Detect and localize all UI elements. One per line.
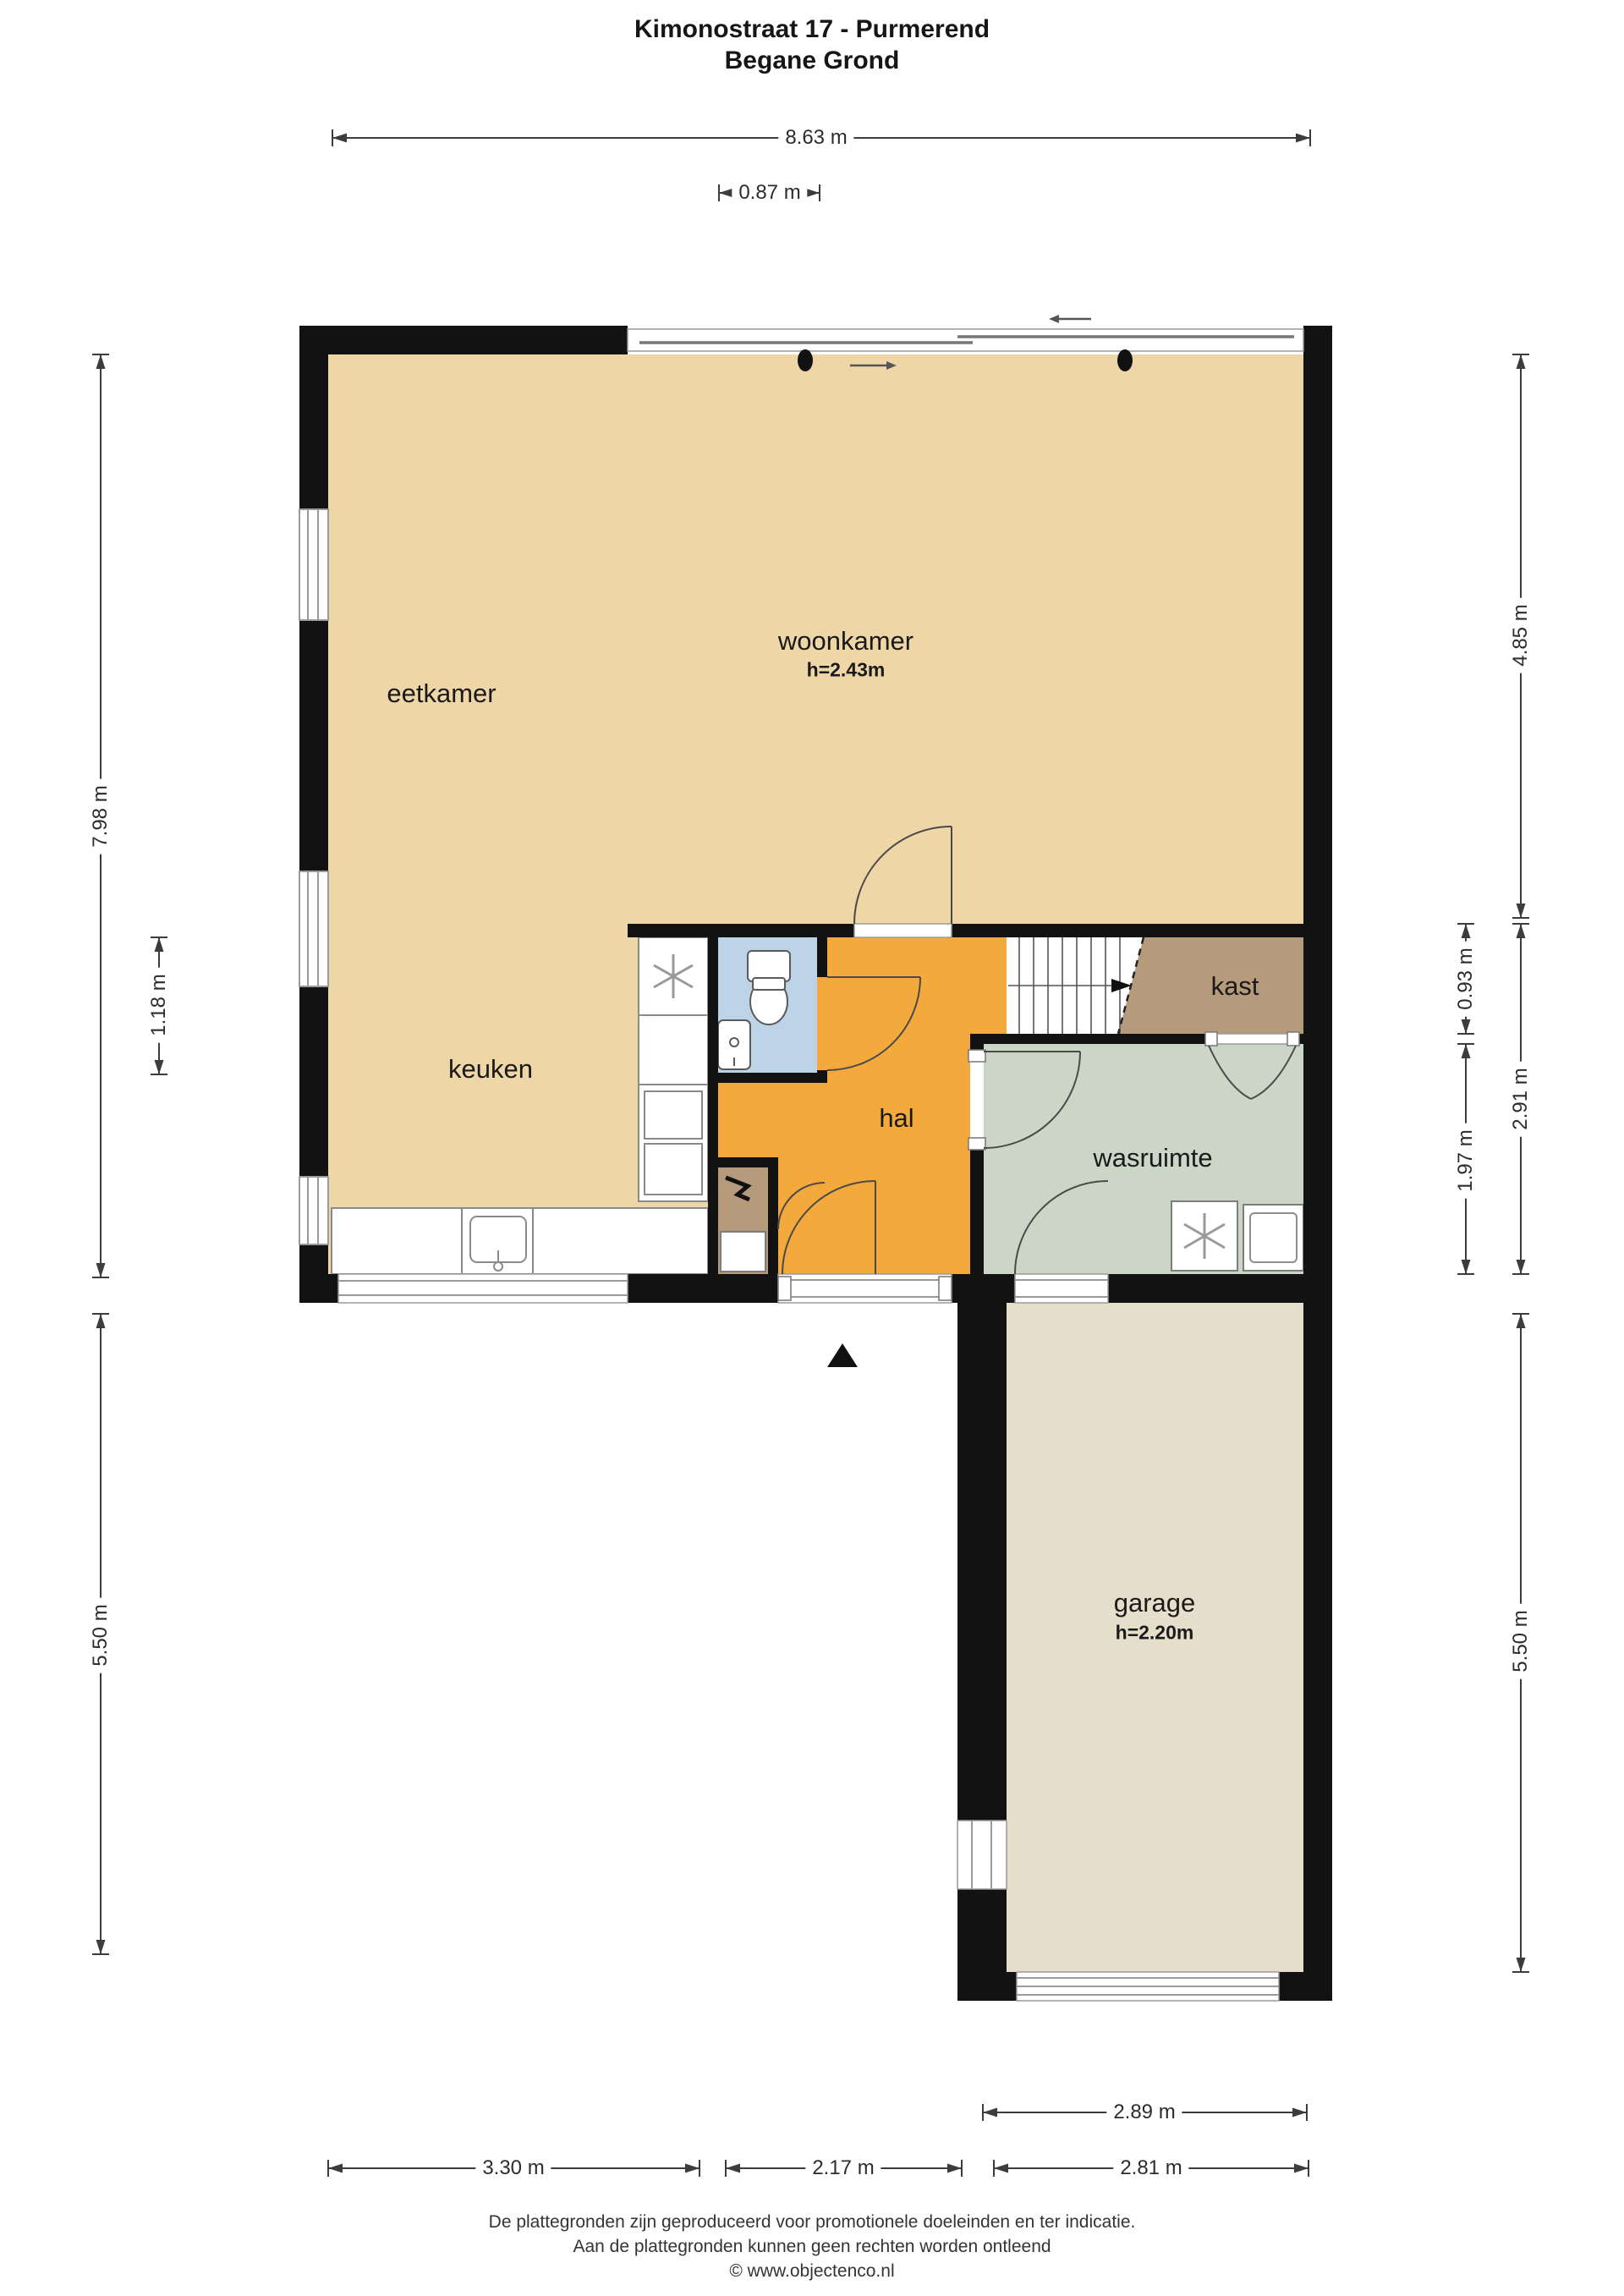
boiler-icon	[721, 1232, 765, 1272]
room-label-woonkamer: woonkamer	[778, 626, 913, 656]
dimension-label-right-kast: 0.93 m	[1452, 941, 1479, 1016]
dimension-label-left-upper: 7.98 m	[87, 778, 114, 854]
disclaimer-line1: De plattegronden zijn geproduceerd voor …	[0, 2210, 1624, 2234]
dimension-label-left-keuken: 1.18 m	[145, 967, 173, 1042]
disclaimer: De plattegronden zijn geproduceerd voor …	[0, 2210, 1624, 2283]
room-label-eetkamer: eetkamer	[387, 678, 496, 709]
slider-handle-icon	[798, 349, 813, 371]
room-ceiling-woonkamer: h=2.43m	[807, 659, 886, 682]
title-address: Kimonostraat 17 - Purmerend	[0, 14, 1624, 45]
floorplan-drawing	[0, 0, 1624, 2296]
dryer-icon	[1243, 1205, 1303, 1271]
dimension-label-right-wasruimte: 1.97 m	[1452, 1123, 1479, 1198]
title-floor: Begane Grond	[0, 45, 1624, 76]
disclaimer-line2: Aan de plattegronden kunnen geen rechten…	[0, 2234, 1624, 2259]
dimension-label-bottom-garage: 2.89 m	[1106, 2099, 1182, 2126]
dimension-label-right-middle: 2.91 m	[1507, 1061, 1534, 1136]
room-label-wasruimte: wasruimte	[1093, 1143, 1212, 1173]
fridge-icon	[645, 1144, 702, 1195]
oven-icon	[645, 1091, 702, 1139]
dimension-label-bottom-center: 2.17 m	[805, 2155, 881, 2182]
garage-door	[1017, 1972, 1279, 2001]
dimension-label-bottom-right: 2.81 m	[1113, 2155, 1188, 2182]
toilet-icon	[748, 951, 790, 1024]
dimension-label-top-slider: 0.87 m	[732, 179, 807, 206]
dimension-label-left-lower: 5.50 m	[87, 1597, 114, 1673]
garage-side-window	[957, 1821, 1007, 1889]
room-ceiling-garage: h=2.20m	[1116, 1622, 1194, 1645]
dimension-label-right-lower: 5.50 m	[1507, 1603, 1534, 1678]
kitchen-window	[338, 1274, 628, 1303]
toilet-sink-icon	[718, 1020, 750, 1069]
entrance-arrow-icon	[827, 1343, 858, 1367]
room-label-kast: kast	[1211, 971, 1259, 1002]
room-label-keuken: keuken	[448, 1054, 533, 1085]
dimension-label-right-upper: 4.85 m	[1507, 597, 1534, 673]
disclaimer-copyright: © www.objectenco.nl	[0, 2259, 1624, 2283]
slider-handle-icon	[1117, 349, 1133, 371]
room-label-garage: garage	[1114, 1588, 1196, 1618]
page-title: Kimonostraat 17 - Purmerend Begane Grond	[0, 14, 1624, 76]
room-label-hal: hal	[879, 1103, 913, 1134]
dimension-label-bottom-left: 3.30 m	[475, 2155, 551, 2182]
dimension-label-top-total: 8.63 m	[778, 124, 853, 151]
